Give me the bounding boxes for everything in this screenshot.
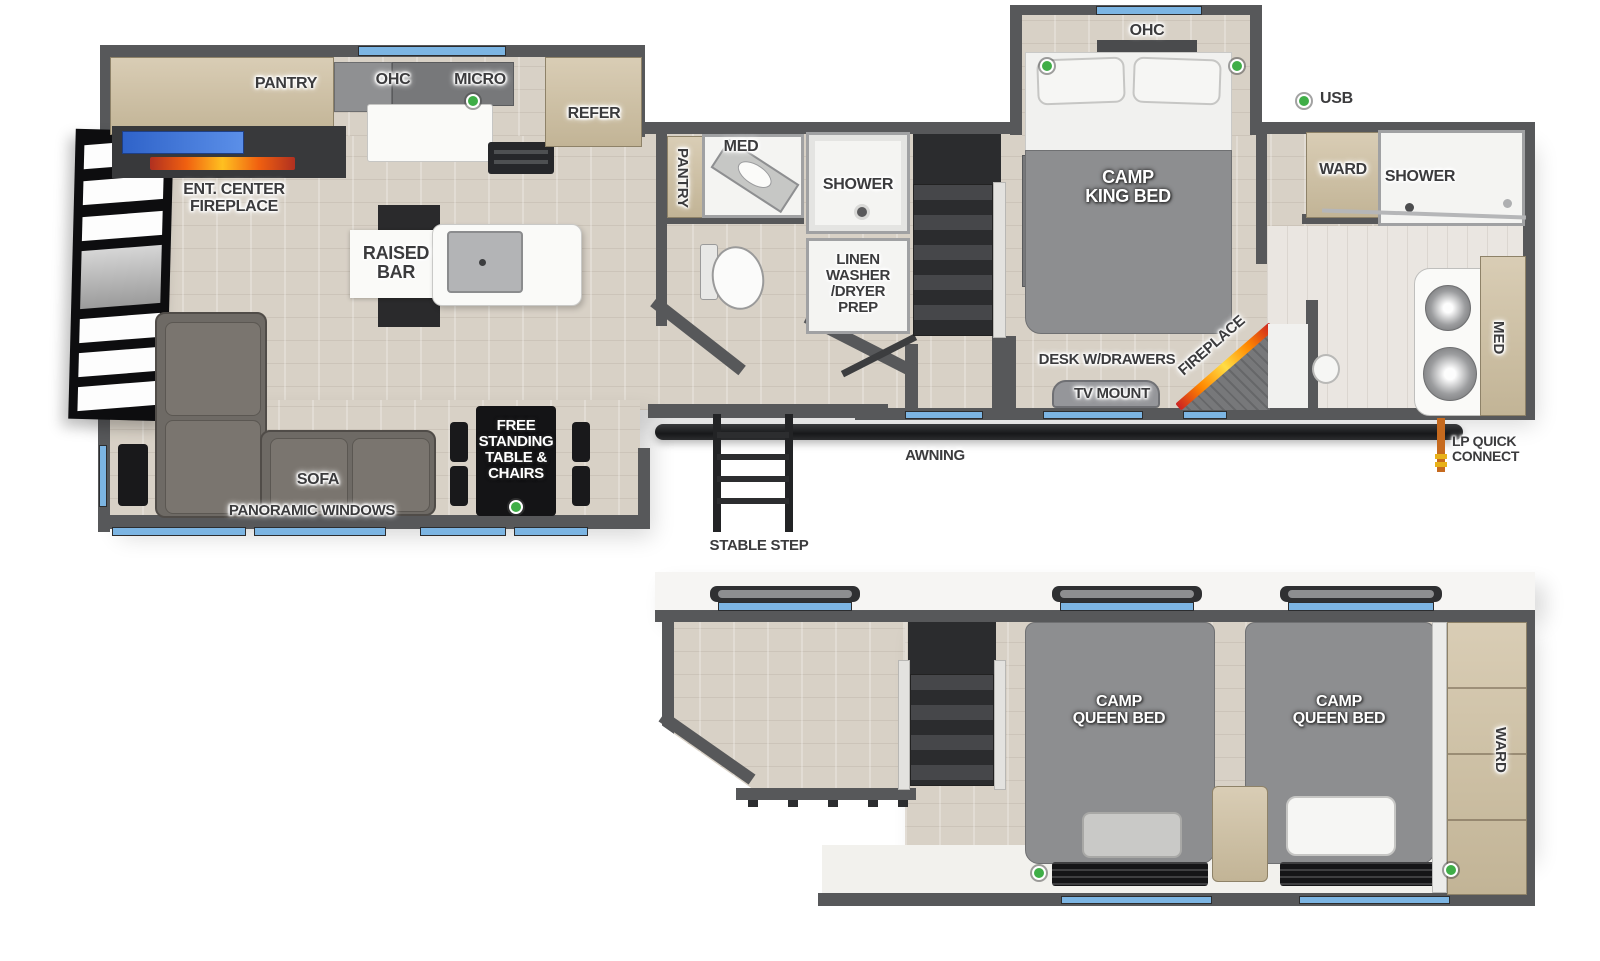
- stairs-landing: [913, 134, 1001, 184]
- rear-window-slat: [77, 381, 158, 411]
- loft-roof-window-frame: [1280, 586, 1442, 602]
- living-window: [514, 527, 588, 536]
- dinette-chair: [572, 422, 590, 462]
- tv-console: [118, 444, 148, 506]
- loft-nightstand: [1212, 786, 1268, 882]
- label-pantry-bath: PANTRY: [674, 138, 690, 218]
- loft-window-top: [718, 602, 852, 611]
- living-window: [420, 527, 506, 536]
- label-panoramic-windows: PANORAMIC WINDOWS: [218, 503, 406, 519]
- dinette-chair: [450, 422, 468, 462]
- usb-dot-micro: [466, 94, 480, 108]
- railing-post: [828, 800, 838, 807]
- loft-stairs: [910, 674, 994, 786]
- usb-dot-loft-left: [1032, 866, 1046, 880]
- usb-dot-king-right: [1230, 59, 1244, 73]
- label-desk: DESK W/DRAWERS: [1030, 352, 1184, 368]
- living-window: [112, 527, 246, 536]
- wall-stub-a: [905, 344, 918, 412]
- stairs-main: [913, 184, 993, 336]
- shower-head-dot: [1503, 199, 1512, 208]
- railing-post: [748, 800, 758, 807]
- wall-living-slide-right: [638, 448, 650, 528]
- living-window: [254, 527, 386, 536]
- usb-dot-loft-right: [1444, 863, 1458, 877]
- rv-floorplan: PANTRY OHC MICRO REFER ENT. CENTER FIREP…: [0, 0, 1600, 961]
- living-window-side: [99, 445, 107, 507]
- label-sofa: SOFA: [286, 472, 350, 489]
- bedroom-window: [1183, 411, 1227, 419]
- tv-screen: [122, 131, 244, 154]
- label-med-rear: MED: [1490, 306, 1506, 370]
- railing-post: [788, 800, 798, 807]
- sofa-chaise: [155, 312, 267, 518]
- rear-window-slat: [83, 175, 164, 205]
- queen-right-step-mat: [1280, 862, 1442, 886]
- label-tv-mount: TV MOUNT: [1066, 386, 1158, 402]
- label-awning: AWNING: [898, 448, 972, 464]
- king-pillow-right: [1132, 56, 1222, 105]
- label-stable-step: STABLE STEP: [698, 538, 820, 554]
- label-ohc-kitchen: OHC: [362, 72, 424, 89]
- usb-legend-label: USB: [1320, 91, 1364, 108]
- rear-window-slat: [79, 313, 160, 343]
- stable-step-ladder: [713, 414, 793, 532]
- refer-cabinet: [545, 57, 642, 147]
- queen-right-pillow: [1286, 796, 1396, 856]
- vanity-sink: [1425, 285, 1471, 331]
- label-camp-king-bed: CAMP KING BED: [1058, 168, 1198, 206]
- label-dinette: FREE STANDING TABLE & CHAIRS: [478, 418, 554, 482]
- dinette-chair: [450, 466, 468, 506]
- label-raised-bar: RAISED BAR: [350, 244, 442, 282]
- wall-king-slide-left: [1010, 5, 1022, 135]
- lp-pipe: [1437, 418, 1445, 472]
- bedroom-window: [1043, 411, 1143, 419]
- loft-stairs-stringer: [898, 660, 910, 790]
- label-queen-bed-right: CAMP QUEEN BED: [1272, 694, 1406, 728]
- king-window: [1096, 6, 1202, 15]
- loft-ward-cabinet: [1447, 622, 1527, 895]
- label-linen: LINEN WASHER /DRYER PREP: [812, 252, 904, 316]
- stairs-stringer: [993, 182, 1006, 338]
- vanity-sink: [1423, 347, 1477, 401]
- bedroom-window: [905, 411, 983, 419]
- loft-roof-window-frame: [710, 586, 860, 602]
- loft-window-bottom: [1299, 896, 1450, 904]
- loft-stairs-landing: [908, 622, 996, 674]
- label-ward-rear: WARD: [1310, 162, 1376, 179]
- loft-window-top: [1288, 602, 1434, 611]
- label-med-bath: MED: [716, 139, 766, 156]
- queen-left-step-mat: [1052, 862, 1208, 886]
- rear-window-slat: [82, 211, 163, 241]
- island-counter: [432, 224, 582, 306]
- ent-center-unit: [112, 126, 346, 178]
- railing-post: [898, 800, 908, 807]
- label-refer: REFER: [558, 106, 630, 123]
- label-ward-loft: WARD: [1492, 702, 1508, 798]
- shower-drain: [857, 207, 867, 217]
- wall-bed-bath-divider: [1256, 134, 1267, 264]
- pantry-cabinet: [110, 57, 334, 135]
- label-lp-quick-connect: LP QUICK CONNECT: [1452, 434, 1544, 464]
- label-pantry-kitchen: PANTRY: [240, 76, 332, 93]
- wall-stub-b: [992, 336, 1016, 410]
- label-micro: MICRO: [444, 72, 516, 89]
- label-ent-center: ENT. CENTER FIREPLACE: [168, 182, 300, 216]
- loft-railing: [736, 788, 916, 800]
- kitchen-counter: [367, 104, 493, 162]
- label-queen-bed-left: CAMP QUEEN BED: [1052, 694, 1186, 728]
- kitchen-window: [358, 46, 506, 56]
- railing-post: [868, 800, 878, 807]
- label-shower-rear: SHOWER: [1382, 169, 1458, 186]
- loft-ward-face: [1432, 622, 1447, 893]
- rear-window-panel: [80, 245, 162, 309]
- label-ohc-king: OHC: [1116, 23, 1178, 40]
- usb-dot-dinette: [509, 500, 523, 514]
- bath-stool: [1312, 354, 1340, 384]
- usb-legend-dot: [1297, 94, 1311, 108]
- fireplace-flames: [150, 157, 295, 170]
- rear-vanity: [1414, 268, 1482, 416]
- island-sink: [447, 231, 523, 293]
- loft-wall-top: [655, 610, 1535, 622]
- loft-window-top: [1060, 602, 1194, 611]
- rear-bath-alcove: [1268, 324, 1308, 408]
- loft-window-bottom: [1061, 896, 1212, 904]
- wall-king-slide-right: [1250, 5, 1262, 135]
- dinette-chair: [572, 466, 590, 506]
- rear-window-slat: [78, 347, 159, 377]
- queen-left-pillow: [1082, 812, 1182, 858]
- label-shower-mid: SHOWER: [820, 177, 896, 194]
- loft-roof-window-frame: [1052, 586, 1202, 602]
- loft-stairs-stringer: [994, 660, 1006, 790]
- usb-dot-king-left: [1040, 59, 1054, 73]
